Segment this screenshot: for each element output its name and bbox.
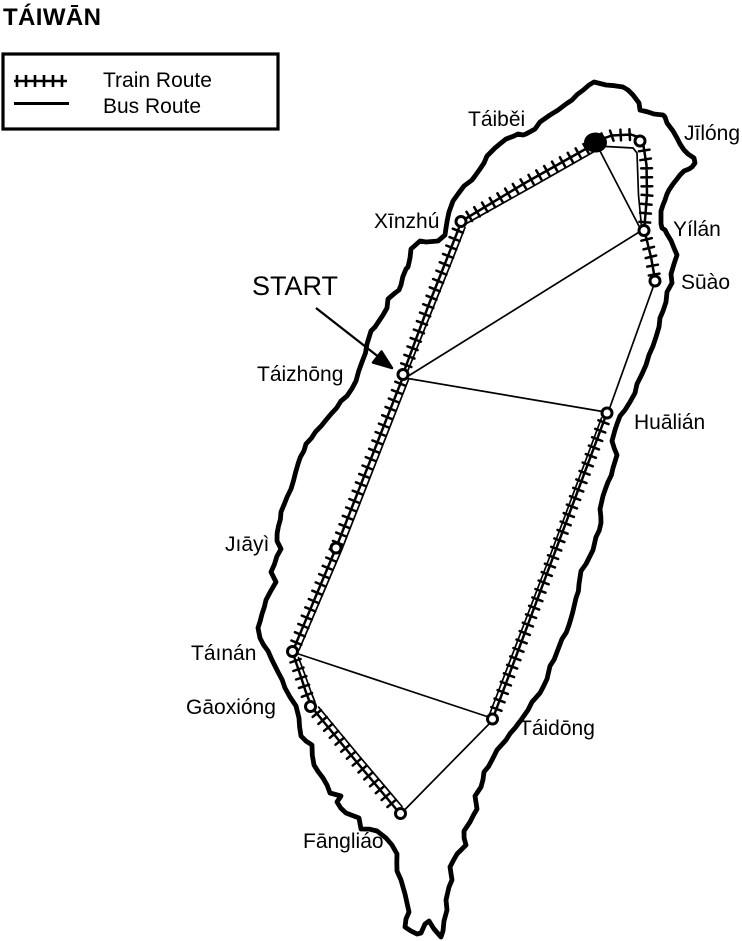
svg-text:TÁIWĀN: TÁIWĀN: [3, 3, 101, 31]
svg-text:Táiběi: Táiběi: [468, 108, 525, 131]
svg-text:Sūào: Sūào: [681, 271, 730, 294]
svg-text:START: START: [252, 271, 338, 301]
svg-text:Xīnzhú: Xīnzhú: [374, 210, 439, 233]
svg-text:Yílán: Yílán: [673, 218, 721, 241]
svg-text:Huālián: Huālián: [634, 411, 705, 434]
svg-text:Táidōng: Táidōng: [519, 717, 595, 740]
svg-text:Gāoxióng: Gāoxióng: [186, 696, 276, 719]
svg-text:Táizhōng: Táizhōng: [257, 363, 343, 386]
svg-text:Jıāyì: Jıāyì: [225, 533, 269, 556]
svg-text:Táınán: Táınán: [191, 642, 256, 665]
svg-text:Train Route: Train Route: [103, 69, 212, 92]
svg-text:Bus Route: Bus Route: [103, 95, 201, 118]
svg-text:Fāngliáo: Fāngliáo: [303, 830, 384, 853]
svg-text:Jīlóng: Jīlóng: [684, 122, 740, 145]
